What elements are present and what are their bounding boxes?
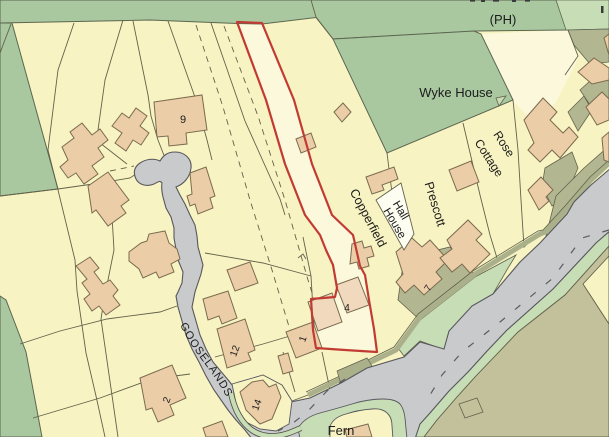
svg-text:Wyke House: Wyke House: [419, 85, 493, 100]
svg-text:4: 4: [344, 303, 350, 314]
svg-text:(PH): (PH): [490, 12, 517, 27]
svg-text:Fern: Fern: [328, 423, 355, 437]
svg-text:9: 9: [180, 114, 186, 126]
